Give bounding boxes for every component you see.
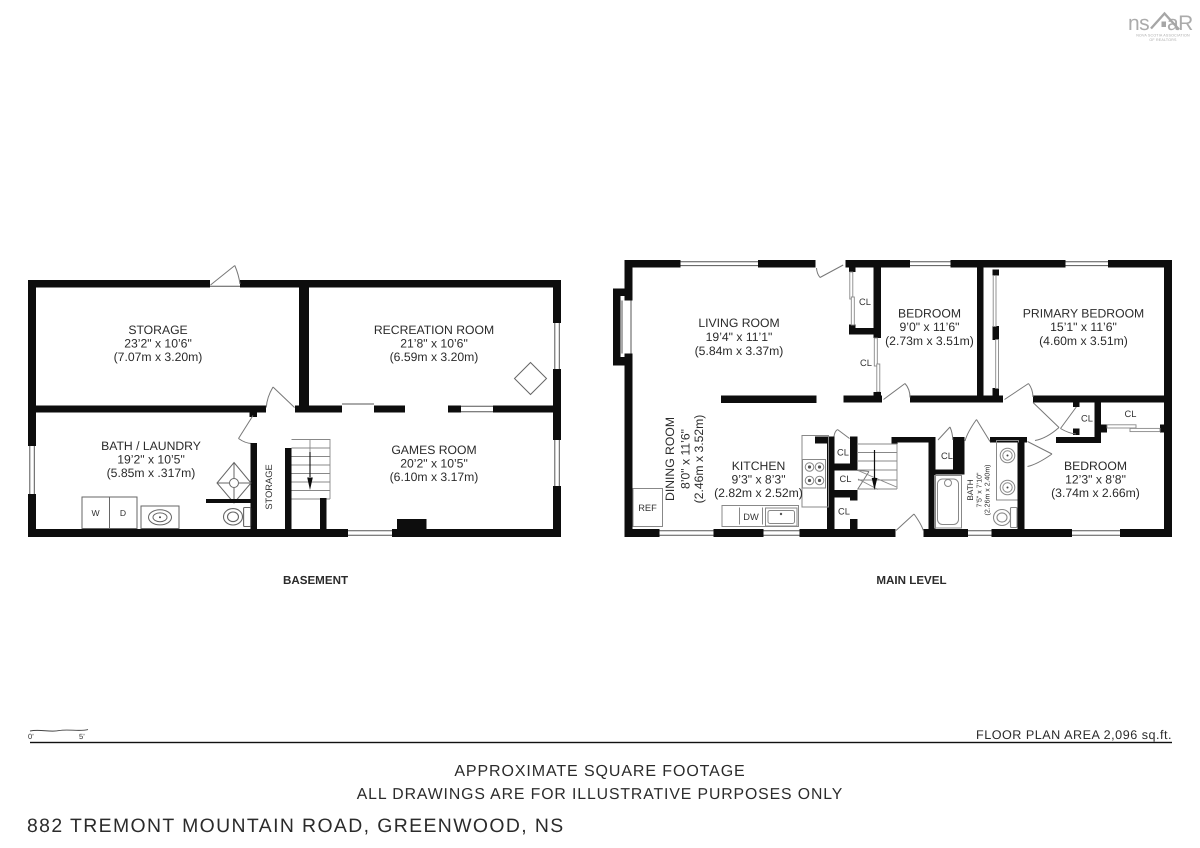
svg-text:ALL DRAWINGS ARE FOR ILLUSTRAT: ALL DRAWINGS ARE FOR ILLUSTRATIVE PURPOS… xyxy=(357,786,843,803)
svg-text:882 TREMONT MOUNTAIN ROAD, GRE: 882 TREMONT MOUNTAIN ROAD, GREENWOOD, NS xyxy=(27,815,565,837)
svg-text:0’: 0’ xyxy=(28,732,34,741)
svg-text:RECREATION ROOM: RECREATION ROOM xyxy=(374,323,494,337)
svg-text:CL: CL xyxy=(838,507,850,517)
svg-text:9’3" x 8’3": 9’3" x 8’3" xyxy=(731,473,785,487)
svg-text:aR: aR xyxy=(1167,12,1193,35)
svg-text:REF: REF xyxy=(638,503,657,513)
svg-text:APPROXIMATE SQUARE FOOTAGE: APPROXIMATE SQUARE FOOTAGE xyxy=(454,763,745,780)
svg-text:(2.82m x 2.52m): (2.82m x 2.52m) xyxy=(714,486,803,500)
svg-text:STORAGE: STORAGE xyxy=(128,323,187,337)
svg-text:12’3" x 8’8": 12’3" x 8’8" xyxy=(1065,473,1126,487)
svg-text:OF REALTORS: OF REALTORS xyxy=(1149,38,1177,42)
svg-text:5’: 5’ xyxy=(79,732,85,741)
svg-text:NOVA SCOTIA ASSOCIATION: NOVA SCOTIA ASSOCIATION xyxy=(1136,34,1190,38)
svg-text:CL: CL xyxy=(1125,409,1137,419)
svg-text:CL: CL xyxy=(941,451,953,461)
svg-text:(2.73m x 3.51m): (2.73m x 3.51m) xyxy=(885,334,974,348)
svg-text:CL: CL xyxy=(859,297,871,307)
svg-text:(6.10m x 3.17m): (6.10m x 3.17m) xyxy=(390,470,479,484)
svg-text:21’8" x 10’6": 21’8" x 10’6" xyxy=(400,337,468,351)
svg-text:CL: CL xyxy=(837,448,849,458)
svg-text:MAIN LEVEL: MAIN LEVEL xyxy=(876,574,946,587)
svg-text:19’2" x 10’5": 19’2" x 10’5" xyxy=(117,453,185,467)
svg-text:8’0" x 11’6": 8’0" x 11’6" xyxy=(679,429,693,489)
svg-text:(2.46m x 3.52m): (2.46m x 3.52m) xyxy=(692,415,706,504)
svg-text:(5.84m x 3.37m): (5.84m x 3.37m) xyxy=(695,344,784,358)
svg-text:BEDROOM: BEDROOM xyxy=(1064,459,1127,473)
svg-text:W: W xyxy=(91,508,100,518)
svg-text:20’2" x 10’5": 20’2" x 10’5" xyxy=(400,457,468,471)
svg-text:BASEMENT: BASEMENT xyxy=(283,574,348,587)
svg-text:(3.74m x 2.66m): (3.74m x 2.66m) xyxy=(1051,486,1140,500)
svg-text:ns: ns xyxy=(1128,12,1149,35)
svg-text:(5.85m x .317m): (5.85m x .317m) xyxy=(107,466,196,480)
svg-text:9’0" x 11’6": 9’0" x 11’6" xyxy=(900,320,960,334)
svg-text:DW: DW xyxy=(743,512,759,522)
svg-text:19’4" x 11’1": 19’4" x 11’1" xyxy=(706,330,773,344)
svg-text:CL: CL xyxy=(1081,414,1093,424)
svg-text:BATH / LAUNDRY: BATH / LAUNDRY xyxy=(101,439,201,453)
svg-text:(2.26m x 2.40m): (2.26m x 2.40m) xyxy=(984,465,992,516)
svg-text:BATH: BATH xyxy=(966,479,975,500)
svg-text:FLOOR PLAN AREA 2,096 sq.ft.: FLOOR PLAN AREA 2,096 sq.ft. xyxy=(976,728,1172,742)
svg-text:BEDROOM: BEDROOM xyxy=(898,307,961,321)
svg-text:(6.59m x 3.20m): (6.59m x 3.20m) xyxy=(390,350,479,364)
svg-text:PRIMARY BEDROOM: PRIMARY BEDROOM xyxy=(1023,307,1144,321)
svg-text:LIVING ROOM: LIVING ROOM xyxy=(698,316,779,330)
svg-text:GAMES ROOM: GAMES ROOM xyxy=(391,443,476,457)
svg-text:(7.07m x 3.20m): (7.07m x 3.20m) xyxy=(114,350,203,364)
svg-text:(4.60m x 3.51m): (4.60m x 3.51m) xyxy=(1039,334,1128,348)
svg-text:15’1" x 11’6": 15’1" x 11’6" xyxy=(1050,320,1117,334)
svg-text:7’5" x 7’10": 7’5" x 7’10" xyxy=(977,472,984,507)
svg-text:DINING ROOM: DINING ROOM xyxy=(663,417,677,501)
svg-text:CL: CL xyxy=(840,474,852,484)
svg-text:STORAGE: STORAGE xyxy=(264,464,274,509)
svg-text:23’2" x 10’6": 23’2" x 10’6" xyxy=(124,337,192,351)
svg-text:CL: CL xyxy=(860,358,872,368)
svg-text:D: D xyxy=(120,508,126,518)
svg-text:KITCHEN: KITCHEN xyxy=(732,459,786,473)
